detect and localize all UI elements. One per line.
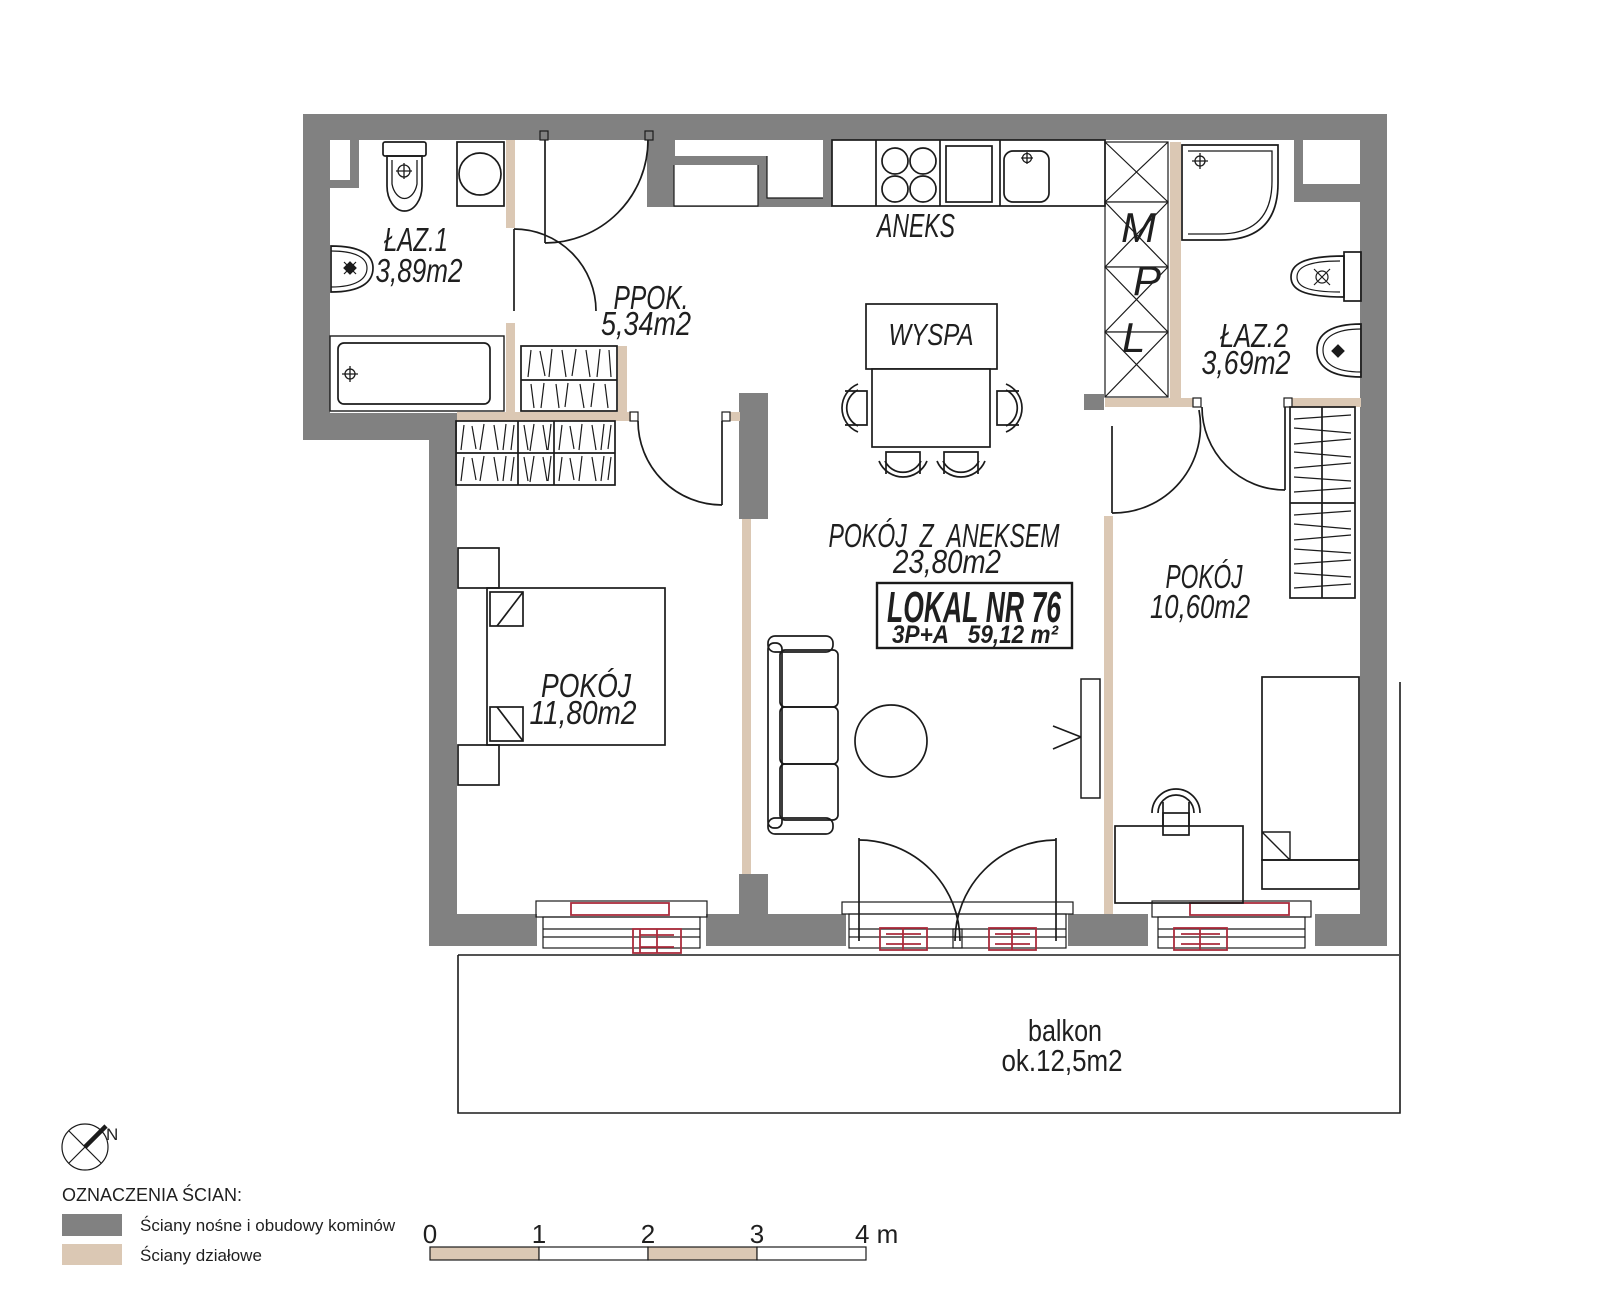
svg-text:WYSPA: WYSPA [889, 317, 974, 352]
svg-text:3P+A 59,12 m²: 3P+A 59,12 m² [892, 621, 1059, 649]
svg-text:3,69m2: 3,69m2 [1202, 344, 1291, 381]
svg-text:OZNACZENIA ŚCIAN:: OZNACZENIA ŚCIAN: [62, 1184, 242, 1205]
svg-text:ok.12,5m2: ok.12,5m2 [1002, 1043, 1123, 1078]
svg-text:5,34m2: 5,34m2 [601, 305, 691, 342]
svg-text:Ściany nośne i obudowy kominów: Ściany nośne i obudowy kominów [140, 1216, 396, 1235]
svg-text:1: 1 [532, 1219, 546, 1249]
svg-text:3,89m2: 3,89m2 [376, 252, 463, 289]
svg-text:ANEKS: ANEKS [876, 207, 955, 244]
svg-text:2: 2 [641, 1219, 655, 1249]
svg-text:3: 3 [750, 1219, 764, 1249]
svg-text:23,80m2: 23,80m2 [892, 543, 1001, 580]
svg-text:0: 0 [423, 1219, 437, 1249]
svg-text:L: L [1122, 314, 1145, 361]
svg-text:Ściany działowe: Ściany działowe [140, 1246, 262, 1265]
svg-text:P: P [1133, 257, 1161, 304]
svg-text:11,80m2: 11,80m2 [530, 694, 637, 731]
svg-text:4 m: 4 m [855, 1219, 898, 1249]
svg-text:N: N [106, 1125, 118, 1144]
svg-text:10,60m2: 10,60m2 [1150, 588, 1250, 625]
svg-text:M: M [1121, 204, 1156, 251]
